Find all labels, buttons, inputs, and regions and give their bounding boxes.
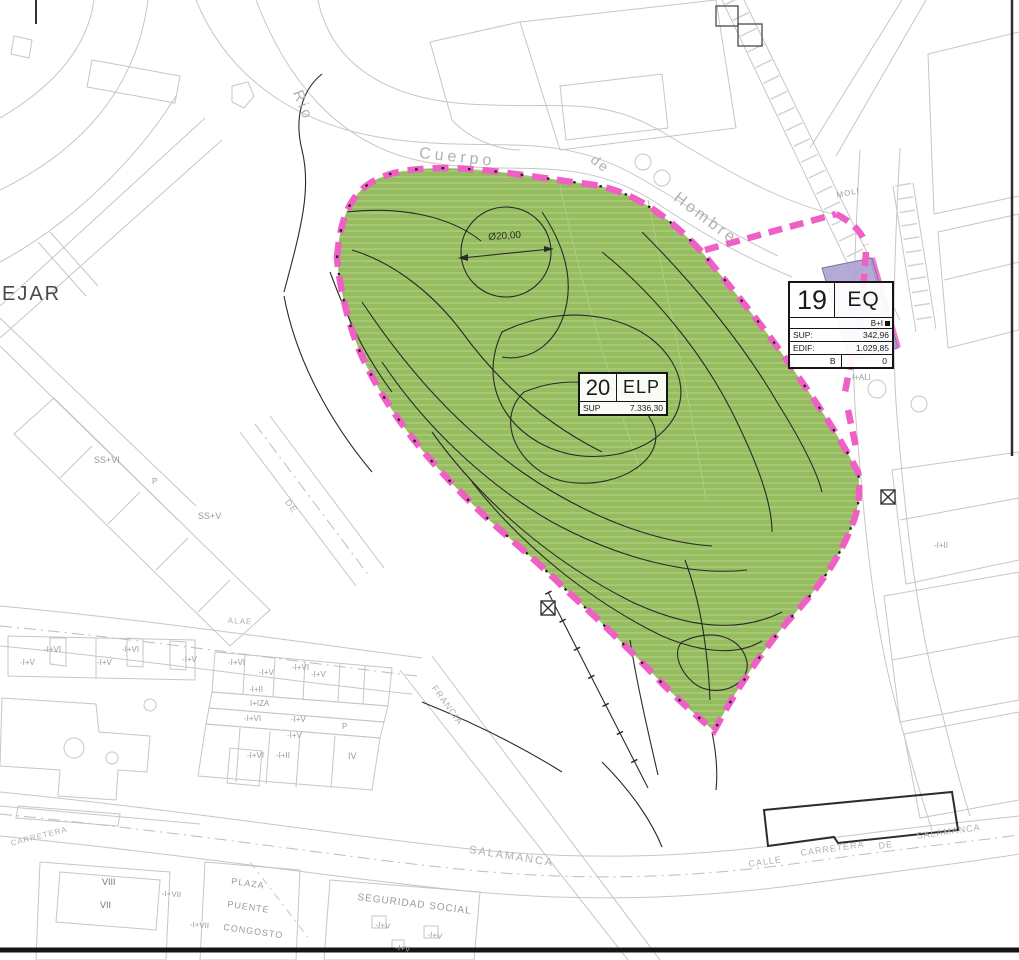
parcel-card-header: 19 EQ bbox=[790, 283, 892, 318]
floors-label-vii: VII bbox=[100, 901, 111, 910]
street-label-alae: ALAE bbox=[228, 617, 253, 626]
floors-label-i-ii: -I+II bbox=[934, 542, 948, 550]
floor-label: -I+VII bbox=[161, 890, 181, 899]
parcel-floors-row: B+I bbox=[790, 318, 892, 329]
floors-label-viii: VIII bbox=[102, 878, 116, 887]
col-0-value: 0 bbox=[842, 355, 893, 367]
floor-label: -I+V bbox=[311, 671, 326, 679]
parcel-code: ELP bbox=[617, 374, 666, 401]
parcel-floors-value: B+I bbox=[871, 319, 883, 328]
sup-label: SUP bbox=[583, 402, 600, 414]
parcel-number: 19 bbox=[790, 283, 835, 317]
floor-label: -I+II bbox=[249, 686, 263, 694]
sup-value: 7.336,30 bbox=[630, 402, 663, 414]
floor-label: -I+V bbox=[287, 732, 302, 740]
building-label-p2: P bbox=[342, 723, 347, 731]
parcel-edif-row: EDIF: 1.029,85 bbox=[790, 342, 892, 355]
floor-label: -I+VI bbox=[122, 646, 139, 654]
floor-label: -I+VI bbox=[44, 646, 61, 654]
building-label-ssvi: SS+VI bbox=[94, 456, 120, 465]
floor-label: I+IZA bbox=[250, 700, 269, 708]
floor-label: -I+VI bbox=[244, 715, 261, 723]
black-square-icon bbox=[885, 321, 890, 326]
edif-label: EDIF: bbox=[793, 342, 815, 354]
building-label-p: P bbox=[152, 478, 157, 486]
floor-label: -I+VII bbox=[189, 921, 209, 930]
floor-label: -I+VI bbox=[247, 752, 264, 760]
floors-label-iv: IV bbox=[348, 752, 357, 761]
parcel-label-iali: I+ALI bbox=[852, 374, 871, 382]
parcel-sup-row: SUP 7.336,30 bbox=[580, 402, 666, 414]
sup-label: SUP: bbox=[793, 329, 813, 341]
floor-label: -I+II bbox=[276, 752, 290, 760]
floor-label: -I+V bbox=[291, 716, 306, 724]
building-label-ssv: SS+V bbox=[198, 512, 221, 521]
place-label-ejar: EJAR bbox=[2, 284, 61, 304]
parcel-card-20-elp: 20 ELP SUP 7.336,30 bbox=[578, 372, 668, 416]
planning-map: Rio Cuerpo de Hombre EJAR Ø20,00 MOLI SS… bbox=[0, 0, 1019, 960]
floor-label: -I+VI bbox=[228, 659, 245, 667]
edif-value: 1.029,85 bbox=[856, 342, 889, 354]
parcel-card-19-eq: 19 EQ B+I SUP: 342,96 EDIF: 1.029,85 B 0 bbox=[788, 281, 894, 369]
parcel-bottom-row: B 0 bbox=[790, 355, 892, 367]
floor-label: -I+V bbox=[182, 656, 197, 664]
col-b-value: B bbox=[790, 355, 842, 367]
parcel-code: EQ bbox=[835, 283, 892, 317]
parcel-sup-row: SUP: 342,96 bbox=[790, 329, 892, 342]
sup-value: 342,96 bbox=[863, 329, 889, 341]
floor-label: -I+V bbox=[20, 659, 35, 667]
floor-label: -I+V bbox=[259, 669, 274, 677]
parcel-number: 20 bbox=[580, 374, 617, 401]
parcel-card-header: 20 ELP bbox=[580, 374, 666, 402]
floor-label: -I+VI bbox=[292, 664, 309, 672]
floor-label: -I+V bbox=[97, 659, 112, 667]
